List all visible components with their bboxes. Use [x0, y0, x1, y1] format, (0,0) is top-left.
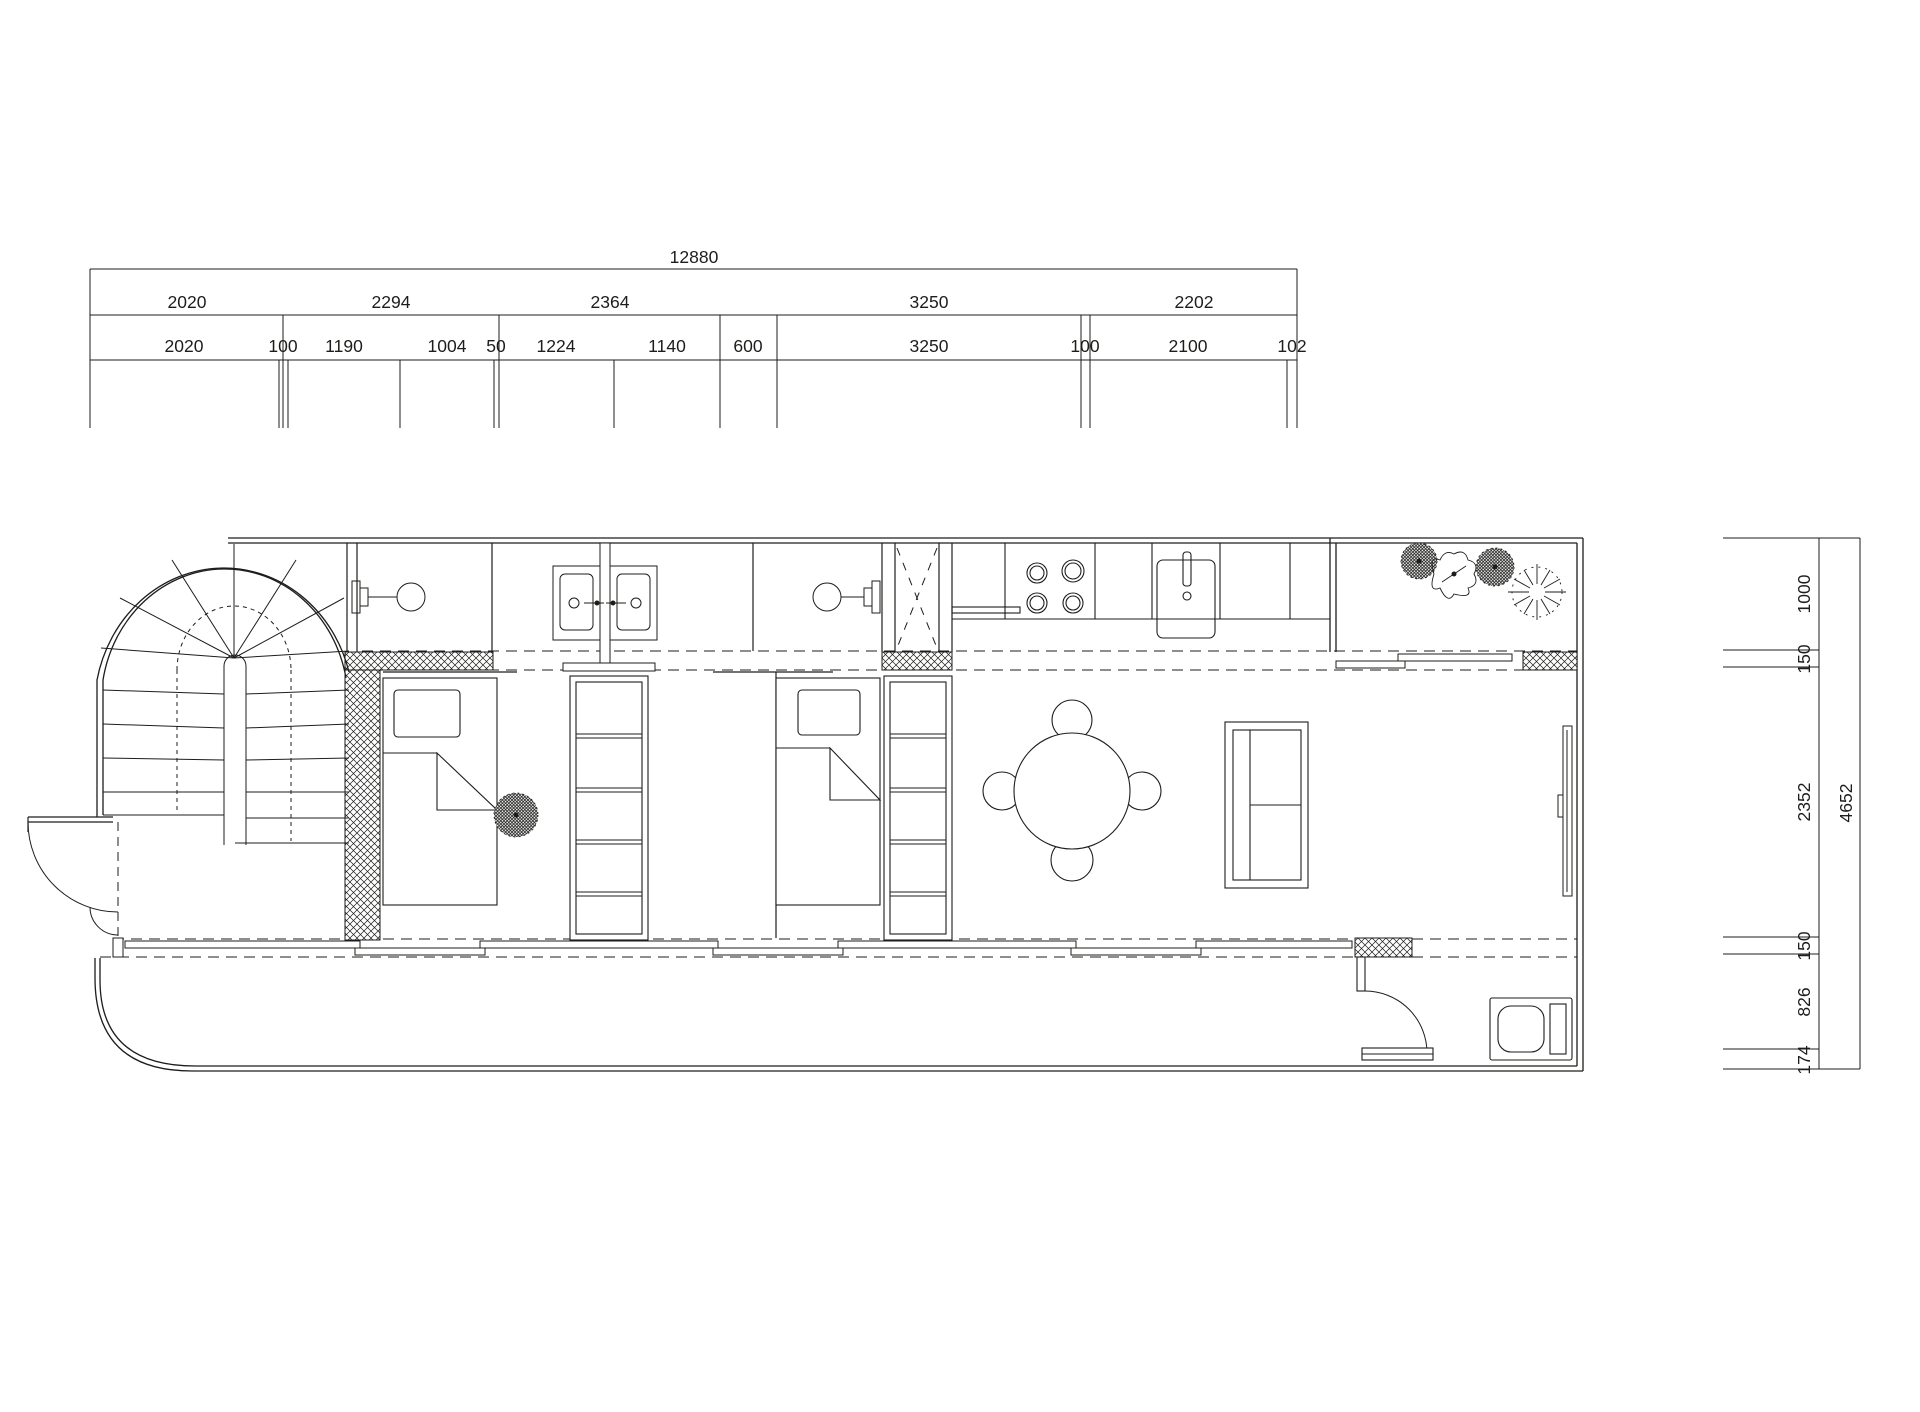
dim-right-1: 150 [1794, 644, 1814, 673]
vanity-counter-edge [563, 663, 655, 671]
sliding-panel [355, 948, 485, 955]
dim-minor-11: 102 [1277, 336, 1306, 356]
hatched-wall-vertical [345, 652, 380, 940]
dining-table [1014, 733, 1130, 849]
sliding-panel [125, 941, 360, 948]
dim-minor-8: 3250 [910, 336, 949, 356]
dim-major-2: 2364 [591, 292, 630, 312]
dim-minor-10: 2100 [1169, 336, 1208, 356]
entry-door-leaf-large [28, 822, 118, 912]
dim-right-0: 1000 [1794, 574, 1814, 613]
dim-minor-9: 100 [1070, 336, 1099, 356]
dim-major-4: 2202 [1175, 292, 1214, 312]
dim-major-0: 2020 [168, 292, 207, 312]
terrace-plants [1401, 543, 1566, 620]
pillow [798, 690, 860, 735]
spiral-staircase [97, 544, 349, 845]
window-jamb [113, 938, 123, 957]
dim-minor-5: 1224 [537, 336, 576, 356]
dim-total-height: 4652 [1836, 784, 1856, 823]
sofa [1225, 722, 1308, 888]
stair-newel [224, 655, 246, 845]
dim-right-4: 826 [1794, 987, 1814, 1016]
wall-lamp-right [813, 581, 880, 613]
plant-dark-1 [1401, 543, 1437, 579]
plant-flower [1432, 552, 1476, 598]
vanity-partition-wall [600, 543, 610, 667]
dim-minor-1: 100 [268, 336, 297, 356]
dim-right-5: 174 [1794, 1045, 1814, 1074]
bottom-sliding-windows [100, 938, 1357, 957]
pillow [394, 690, 460, 737]
dim-right-3: 150 [1794, 931, 1814, 960]
service-shaft [882, 543, 952, 652]
kitchen-sink [1157, 552, 1215, 638]
sliding-panel [838, 941, 1076, 948]
bed-1 [383, 678, 497, 905]
hatched-wall-terrace [1523, 652, 1577, 670]
dim-minor-3: 1004 [428, 336, 467, 356]
dim-minor-6: 1140 [648, 336, 686, 356]
kitchen [952, 538, 1336, 652]
terrace-sliding-door [1336, 654, 1512, 668]
floor-plan-canvas: 12880 2020 2294 2364 3250 2202 2020 100 … [0, 0, 1920, 1412]
plant-dark-2 [1476, 548, 1514, 586]
dim-minor-4: 50 [486, 336, 506, 356]
sliding-panel [480, 941, 718, 948]
cooktop-4-burner [1027, 560, 1084, 613]
wall-lamp-left [352, 581, 425, 613]
dim-total-width: 12880 [670, 247, 719, 267]
right-dimension-labels: 1000 150 2352 150 826 174 4652 [1794, 574, 1856, 1074]
dim-minor-7: 600 [733, 336, 762, 356]
bed-2 [776, 678, 880, 905]
dim-major-1: 2294 [372, 292, 411, 312]
entry-doors [28, 817, 118, 938]
wardrobe-2 [884, 676, 952, 940]
door-jamb [1357, 957, 1365, 991]
hatched-wall-bedroom1 [345, 652, 493, 670]
top-dimension-labels: 12880 2020 2294 2364 3250 2202 2020 100 … [165, 247, 1307, 356]
dim-minor-0: 2020 [165, 336, 204, 356]
sliding-panel [1071, 948, 1201, 955]
dim-right-2: 2352 [1794, 783, 1814, 822]
hatched-wall-bottom [1355, 938, 1412, 957]
dim-major-3: 3250 [910, 292, 949, 312]
double-sink-vanity [553, 543, 657, 671]
sliding-panel [713, 948, 843, 955]
door-swing [1365, 991, 1427, 1053]
sliding-door-right [1558, 726, 1572, 896]
dim-minor-2: 1190 [325, 336, 363, 356]
toilet [1490, 998, 1572, 1060]
sliding-panel [1196, 941, 1352, 948]
wardrobe-1 [570, 676, 648, 940]
hatched-wall-shaft [882, 652, 952, 670]
towel-bar [952, 607, 1020, 613]
indoor-plant [494, 793, 538, 837]
dining-set [983, 700, 1161, 881]
upper-strip-walls [347, 543, 753, 652]
plant-shrub [1508, 564, 1566, 620]
